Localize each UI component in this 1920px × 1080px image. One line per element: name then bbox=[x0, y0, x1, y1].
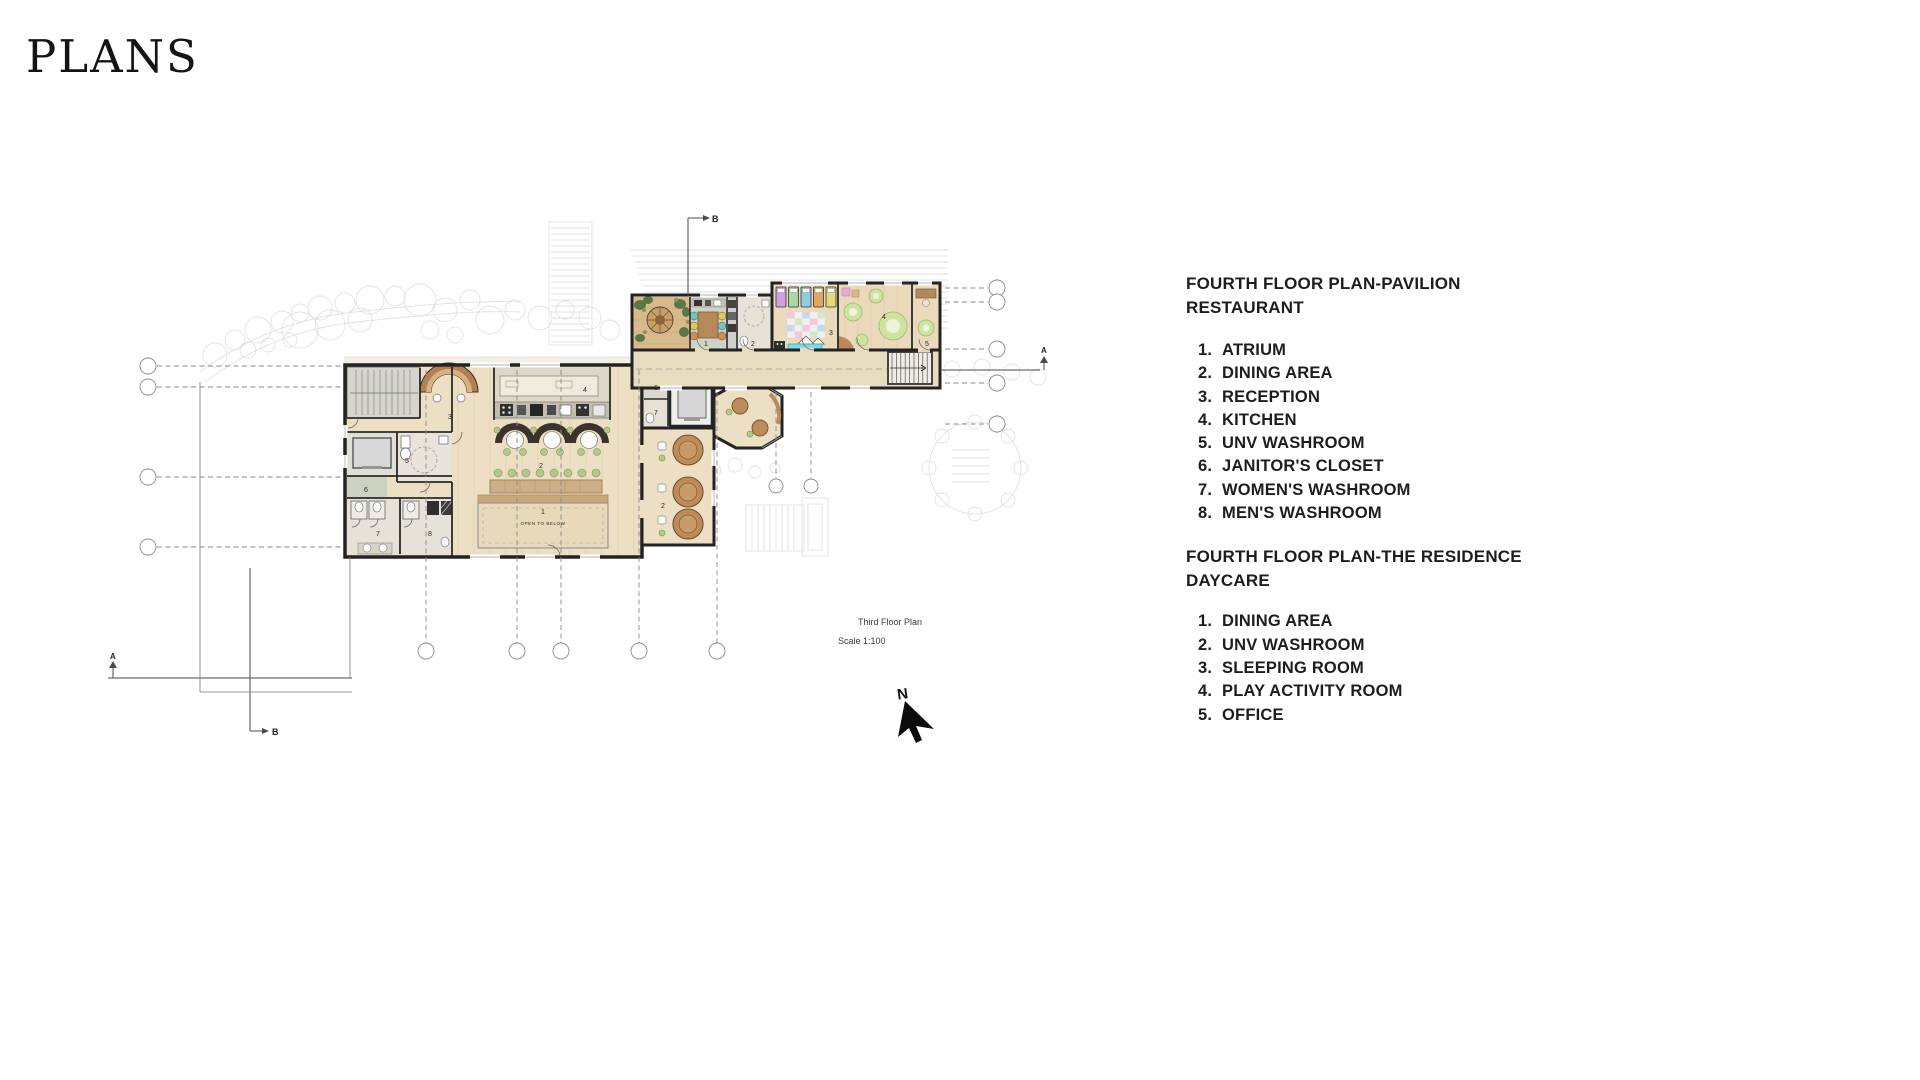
section-label-b-bottom: B bbox=[272, 727, 279, 737]
list-item: 6.JANITOR'S CLOSET bbox=[1198, 455, 1531, 478]
section-label-a-right: A bbox=[1041, 346, 1047, 355]
grid-bubble bbox=[631, 643, 647, 659]
list-item: 8.MEN'S WASHROOM bbox=[1198, 502, 1531, 525]
daycare-building bbox=[632, 281, 940, 391]
grid-bubble bbox=[804, 479, 818, 493]
grid-bubble bbox=[140, 379, 156, 395]
legend-heading-restaurant-line1: FOURTH FLOOR PLAN-PAVILION bbox=[1186, 272, 1531, 296]
section-label-b-top: B bbox=[712, 214, 719, 224]
legend-heading-daycare-line2: DAYCARE bbox=[1186, 569, 1531, 593]
label-dc-sleeping: 3 bbox=[829, 330, 833, 337]
grid-bubble bbox=[418, 643, 434, 659]
legend-list-daycare: 1.DINING AREA 2.UNV WASHROOM 3.SLEEPING … bbox=[1186, 610, 1531, 726]
label-open-to-below: OPEN TO BELOW bbox=[521, 521, 566, 526]
floor-plan: B B A A 3 4 2 5 6 7 8 1 2 6 7 1 2 3 4 5 … bbox=[100, 200, 1100, 760]
label-janitor: 6 bbox=[364, 487, 368, 494]
legend-section-daycare: FOURTH FLOOR PLAN-THE RESIDENCE DAYCARE … bbox=[1186, 545, 1531, 726]
label-unv-washroom: 5 bbox=[405, 458, 409, 465]
legend-section-restaurant: FOURTH FLOOR PLAN-PAVILION RESTAURANT 1.… bbox=[1186, 272, 1531, 525]
label-dc-office: 5 bbox=[925, 341, 929, 348]
label-dc-washroom: 2 bbox=[751, 341, 755, 348]
caption-scale: Scale 1:100 bbox=[838, 636, 886, 646]
grid-bubble bbox=[989, 341, 1005, 357]
list-item: 5.OFFICE bbox=[1198, 704, 1531, 727]
legend-heading-restaurant-line2: RESTAURANT bbox=[1186, 296, 1531, 320]
list-item: 1.ATRIUM bbox=[1198, 339, 1531, 362]
grid-bubble bbox=[553, 643, 569, 659]
label-women: 7 bbox=[376, 531, 380, 538]
label-atrium: 1 bbox=[541, 509, 545, 516]
list-item: 3.SLEEPING ROOM bbox=[1198, 657, 1531, 680]
legend: FOURTH FLOOR PLAN-PAVILION RESTAURANT 1.… bbox=[1186, 272, 1531, 727]
list-item: 4.PLAY ACTIVITY ROOM bbox=[1198, 680, 1531, 703]
north-label: N bbox=[896, 685, 909, 703]
north-arrow: N bbox=[896, 685, 934, 743]
label-reception: 3 bbox=[448, 414, 452, 421]
list-item: 3.RECEPTION bbox=[1198, 386, 1531, 409]
north-arrow-icon bbox=[898, 701, 934, 743]
grid-bubble bbox=[140, 539, 156, 555]
grid-bubble bbox=[989, 375, 1005, 391]
list-item: 1.DINING AREA bbox=[1198, 610, 1531, 633]
label-dc-play: 4 bbox=[882, 314, 886, 321]
grid-bubble bbox=[140, 469, 156, 485]
list-item: 5.UNV WASHROOM bbox=[1198, 432, 1531, 455]
list-item: 2.UNV WASHROOM bbox=[1198, 634, 1531, 657]
legend-heading-daycare-line1: FOURTH FLOOR PLAN-THE RESIDENCE bbox=[1186, 545, 1531, 569]
caption-title: Third Floor Plan bbox=[858, 617, 922, 627]
grid-bubble bbox=[509, 643, 525, 659]
label-kitchen: 4 bbox=[583, 387, 587, 394]
grid-bubble bbox=[989, 416, 1005, 432]
page-title: PLANS bbox=[26, 30, 199, 83]
page: PLANS bbox=[0, 0, 1920, 1080]
legend-list-restaurant: 1.ATRIUM 2.DINING AREA 3.RECEPTION 4.KIT… bbox=[1186, 339, 1531, 525]
label-dc-dining: 1 bbox=[704, 341, 708, 348]
label-dining-round: 2 bbox=[661, 503, 665, 510]
list-item: 7.WOMEN'S WASHROOM bbox=[1198, 479, 1531, 502]
label-conn-janitor: 6 bbox=[654, 385, 658, 392]
bay-window bbox=[714, 384, 782, 448]
label-men: 8 bbox=[428, 531, 432, 538]
label-dining-main: 2 bbox=[539, 463, 543, 470]
section-label-a-left: A bbox=[110, 652, 116, 661]
list-item: 2.DINING AREA bbox=[1198, 362, 1531, 385]
label-conn-women: 7 bbox=[654, 410, 658, 417]
grid-bubble bbox=[769, 479, 783, 493]
list-item: 4.KITCHEN bbox=[1198, 409, 1531, 432]
grid-bubble bbox=[140, 358, 156, 374]
grid-bubble bbox=[989, 294, 1005, 310]
plan-caption: Third Floor Plan Scale 1:100 bbox=[838, 617, 922, 646]
grid-bubble bbox=[709, 643, 725, 659]
